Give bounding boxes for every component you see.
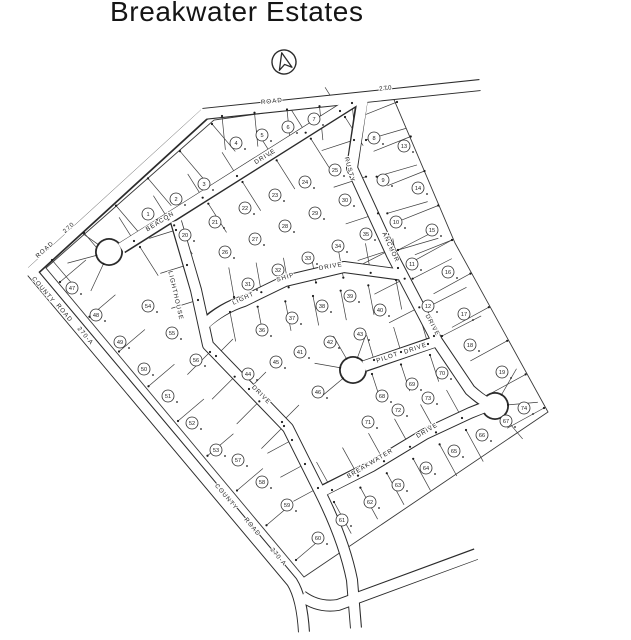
lot-marker: 63: [392, 479, 408, 492]
svg-text:70: 70: [439, 371, 445, 377]
svg-text:50: 50: [141, 367, 147, 373]
lot-marker: 10: [390, 216, 406, 229]
svg-text:35: 35: [363, 232, 369, 238]
lot-marker: 68: [376, 390, 392, 403]
svg-text:19: 19: [499, 370, 505, 376]
svg-text:58: 58: [259, 480, 265, 486]
svg-text:1: 1: [146, 212, 149, 218]
lot-marker: 14: [412, 182, 428, 195]
svg-text:26: 26: [222, 250, 228, 256]
lot-marker: 51: [162, 390, 178, 403]
svg-text:30: 30: [342, 198, 348, 204]
svg-text:63: 63: [395, 483, 401, 489]
lot-marker: 64: [420, 462, 436, 475]
svg-text:69: 69: [409, 382, 415, 388]
svg-text:40: 40: [377, 308, 383, 314]
svg-text:28: 28: [282, 224, 288, 230]
svg-text:64: 64: [423, 466, 429, 472]
lot-marker: 60: [312, 532, 328, 545]
lot-marker: 66: [476, 429, 492, 442]
lot-marker: 30: [339, 194, 355, 207]
svg-text:60: 60: [315, 536, 321, 542]
lot-marker: 49: [114, 336, 130, 349]
lot-marker: 69: [406, 378, 422, 391]
svg-text:39: 39: [347, 294, 353, 300]
svg-text:48: 48: [93, 313, 99, 319]
lot-marker: 65: [448, 445, 464, 458]
svg-text:17: 17: [461, 312, 467, 318]
lot-marker: 4: [230, 137, 246, 150]
svg-text:51: 51: [165, 394, 171, 400]
lot-marker: 22: [239, 202, 255, 215]
svg-text:55: 55: [169, 331, 175, 337]
svg-text:61: 61: [339, 518, 345, 524]
svg-text:36: 36: [259, 328, 265, 334]
lot-marker: 38: [316, 300, 332, 313]
lot-marker: 19: [496, 366, 512, 379]
lot-marker: 62: [364, 496, 380, 509]
lot-marker: 47: [66, 282, 82, 295]
lot-marker: 50: [138, 363, 154, 376]
svg-text:20: 20: [182, 233, 188, 239]
svg-text:68: 68: [379, 394, 385, 400]
svg-text:53: 53: [213, 448, 219, 454]
lot-marker: 37: [286, 312, 302, 325]
svg-text:5: 5: [260, 133, 263, 139]
svg-text:11: 11: [409, 262, 415, 268]
svg-text:42: 42: [327, 340, 333, 346]
svg-text:43: 43: [357, 332, 363, 338]
lot-marker: 9: [377, 174, 393, 187]
svg-text:54: 54: [145, 304, 151, 310]
lot-marker: 28: [279, 220, 295, 233]
north-arrow-icon: [269, 47, 298, 76]
svg-text:52: 52: [189, 421, 195, 427]
svg-text:21: 21: [212, 220, 218, 226]
lot-marker: 61: [336, 514, 352, 527]
lot-marker: 15: [426, 224, 442, 237]
svg-text:38: 38: [319, 304, 325, 310]
lot-marker: 27: [249, 233, 265, 246]
lot-marker: 72: [392, 404, 408, 417]
svg-text:73: 73: [425, 396, 431, 402]
svg-text:32: 32: [275, 268, 281, 274]
lot-marker: 40: [374, 304, 390, 317]
svg-text:41: 41: [297, 350, 303, 356]
lot-marker: 54: [142, 300, 158, 313]
lot-marker: 12: [422, 300, 438, 313]
svg-text:9: 9: [381, 178, 384, 184]
lot-marker: 11: [406, 258, 422, 271]
lot-marker: 20: [179, 229, 195, 242]
lot-marker: 35: [360, 228, 376, 241]
lot-marker: 16: [442, 266, 458, 279]
street-label: LIGHTHOUSE: [166, 270, 184, 321]
svg-text:47: 47: [69, 286, 75, 292]
svg-text:22: 22: [242, 206, 248, 212]
lot-marker: 52: [186, 417, 202, 430]
lot-marker: 74: [518, 402, 534, 415]
lot-marker: 55: [166, 327, 182, 340]
svg-text:45: 45: [273, 360, 279, 366]
lot-marker: 24: [299, 176, 315, 189]
svg-text:14: 14: [415, 186, 421, 192]
svg-text:10: 10: [393, 220, 399, 226]
lot-marker: 1: [142, 208, 158, 221]
lot-marker: 36: [256, 324, 272, 337]
svg-text:16: 16: [445, 270, 451, 276]
svg-text:44: 44: [245, 372, 251, 378]
lot-marker: 5: [256, 129, 272, 142]
street-label: 270: [379, 84, 393, 92]
lot-marker: 21: [209, 216, 225, 229]
lot-marker: 39: [344, 290, 360, 303]
lot-marker: 25: [329, 164, 345, 177]
lot-marker: 33: [302, 252, 318, 265]
lot-marker: 8: [368, 132, 384, 145]
lot-marker: 26: [219, 246, 235, 259]
lot-marker: 58: [256, 476, 272, 489]
svg-text:13: 13: [401, 144, 407, 150]
lot-marker: 42: [324, 336, 340, 349]
svg-text:74: 74: [521, 406, 527, 412]
lot-marker: 44: [242, 368, 258, 381]
lot-marker: 73: [422, 392, 438, 405]
svg-text:29: 29: [312, 211, 318, 217]
svg-text:18: 18: [467, 343, 473, 349]
svg-text:27: 27: [252, 237, 258, 243]
lot-marker: 71: [362, 416, 378, 429]
lot-marker: 23: [269, 189, 285, 202]
svg-text:49: 49: [117, 340, 123, 346]
lot-marker: 17: [458, 308, 474, 321]
lot-marker: 29: [309, 207, 325, 220]
svg-text:3: 3: [202, 182, 205, 188]
svg-text:65: 65: [451, 449, 457, 455]
survey-dots: [51, 101, 545, 561]
svg-text:37: 37: [289, 316, 295, 322]
lot-marker: 57: [232, 454, 248, 467]
svg-text:72: 72: [395, 408, 401, 414]
svg-text:66: 66: [479, 433, 485, 439]
svg-text:6: 6: [286, 125, 289, 131]
svg-text:33: 33: [305, 256, 311, 262]
svg-text:4: 4: [234, 141, 237, 147]
svg-text:24: 24: [302, 180, 308, 186]
lot-marker: 53: [210, 444, 226, 457]
svg-text:62: 62: [367, 500, 373, 506]
svg-text:25: 25: [332, 168, 338, 174]
svg-text:34: 34: [335, 244, 341, 250]
svg-text:56: 56: [193, 358, 199, 364]
svg-text:59: 59: [284, 503, 290, 509]
lot-marker: 34: [332, 240, 348, 253]
svg-text:8: 8: [372, 136, 375, 142]
svg-text:57: 57: [235, 458, 241, 464]
plat-map: 1234567891011121314151617181920212223242…: [0, 0, 631, 640]
svg-text:23: 23: [272, 193, 278, 199]
svg-text:31: 31: [245, 282, 251, 288]
svg-text:71: 71: [365, 420, 371, 426]
lot-marker: 41: [294, 346, 310, 359]
lot-marker: 46: [312, 386, 328, 399]
svg-text:12: 12: [425, 304, 431, 310]
svg-text:46: 46: [315, 390, 321, 396]
lot-marker: 67: [500, 415, 516, 428]
lot-marker: 45: [270, 356, 286, 369]
lot-marker: 18: [464, 339, 480, 352]
lot-marker: 56: [190, 354, 206, 367]
svg-text:7: 7: [312, 117, 315, 123]
lot-lines: [52, 87, 544, 560]
svg-text:15: 15: [429, 228, 435, 234]
svg-text:2: 2: [174, 197, 177, 203]
svg-text:67: 67: [503, 419, 509, 425]
lot-marker: 48: [90, 309, 106, 322]
